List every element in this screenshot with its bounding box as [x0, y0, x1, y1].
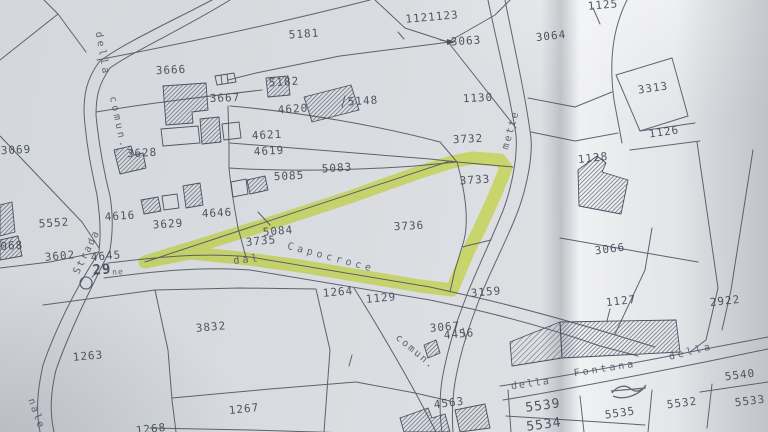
- parcel-label-1268: 1268: [135, 421, 167, 432]
- well-circle-icon: [80, 277, 92, 289]
- parcel-label-3602: 3602: [44, 248, 76, 264]
- parcel-label-5148: 5148: [347, 93, 378, 108]
- parcel-label-1129: 1129: [365, 290, 397, 306]
- parcel-label-3667: 3667: [210, 91, 241, 105]
- parcel-label-4621: 4621: [251, 128, 282, 143]
- parcel-label-5083: 5083: [321, 160, 352, 175]
- parcel-label-3069: 3069: [0, 143, 31, 158]
- parcel-label-3733: 3733: [459, 172, 490, 187]
- road-label-ne: ne: [112, 267, 124, 277]
- parcel-label-4619: 4619: [253, 144, 284, 159]
- parcel-label-5552: 5552: [38, 215, 69, 230]
- parcel-label-5182: 5182: [268, 74, 299, 89]
- highlight-marker: [145, 158, 506, 290]
- parcel-label-1264: 1264: [322, 284, 354, 300]
- parcel-label-3063: 3063: [450, 33, 481, 48]
- parcel-label-4456: 4456: [443, 326, 475, 342]
- parcel-label-4620: 4620: [277, 101, 308, 116]
- parcel-label-4646: 4646: [201, 206, 232, 221]
- parcel-label-3832: 3832: [195, 319, 227, 335]
- parcel-label-3628: 3628: [126, 146, 157, 161]
- parcel-label-3159: 3159: [470, 284, 502, 300]
- parcel-label-3629: 3629: [152, 216, 183, 231]
- parcel-label-3735: 3735: [245, 233, 277, 249]
- parcel-label-1263: 1263: [72, 348, 104, 364]
- parcel-label-29: 29: [92, 261, 112, 279]
- parcel-label-5181: 5181: [288, 26, 319, 41]
- cadastral-map-photo: 1121123306330641125518136663667518246205…: [0, 0, 768, 432]
- scribbled-number-icon: [611, 385, 646, 398]
- parcel-label-3068: 3068: [0, 238, 24, 253]
- parcel-label-1130: 1130: [462, 91, 493, 106]
- parcel-label-3666: 3666: [155, 63, 186, 78]
- parcel-label-4616: 4616: [104, 208, 135, 223]
- parcel-label-3736: 3736: [393, 219, 424, 234]
- parcel-label-5085: 5085: [273, 169, 304, 184]
- parcel-label-3732: 3732: [452, 132, 483, 147]
